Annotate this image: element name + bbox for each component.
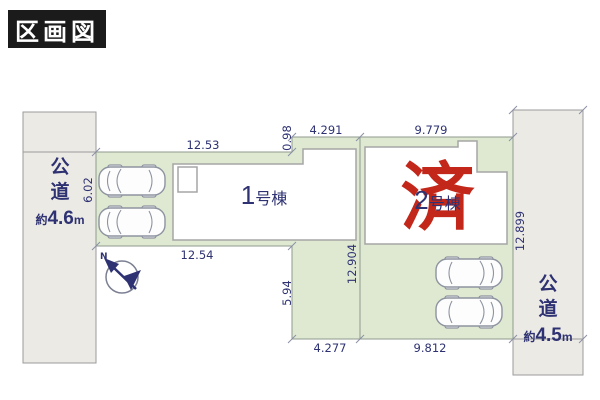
building-2-number: 2 xyxy=(414,185,428,215)
dim-plot1-right: 12.904 xyxy=(345,244,359,284)
building-1-label: 1号棟 xyxy=(204,177,324,213)
dim-plot2-top: 9.779 xyxy=(415,123,448,137)
road-left-unit: m xyxy=(74,213,85,227)
compass-icon: N xyxy=(100,252,141,293)
road-left xyxy=(23,112,96,363)
road-right-name: 公道 xyxy=(536,272,560,322)
building-1-number: 1 xyxy=(241,180,255,210)
building-2-label: 2号棟 xyxy=(380,183,495,217)
dim-plot1-bottom: 12.54 xyxy=(181,248,214,262)
car-icon xyxy=(99,206,165,238)
lot-map: N 12.53 4.291 9.779 12.54 4.277 9.812 6.… xyxy=(0,0,600,400)
car-icon xyxy=(99,165,165,197)
road-left-width: 約4.6m xyxy=(33,208,87,230)
dim-plot1-ext-left: 5.94 xyxy=(280,280,294,306)
road-right-value: 4.5 xyxy=(535,325,561,346)
dim-plot1-top-right: 4.291 xyxy=(310,123,343,137)
compass-north-label: N xyxy=(100,252,108,262)
dim-plot1-top: 12.53 xyxy=(187,138,220,152)
car-icon xyxy=(436,257,502,289)
dim-plot1-ext-bottom: 4.277 xyxy=(314,341,347,355)
road-left-name: 公道 xyxy=(48,155,72,205)
dim-plot2-bottom: 9.812 xyxy=(414,341,447,355)
road-left-approx: 約 xyxy=(35,213,47,227)
road-left-value: 4.6 xyxy=(47,208,73,229)
dim-plot1-step: 0.98 xyxy=(280,125,294,151)
car-icon xyxy=(436,296,502,328)
road-left-label: 公道 約4.6m xyxy=(33,155,87,230)
building-1-porch xyxy=(178,167,197,192)
road-right-unit: m xyxy=(562,330,573,344)
road-right-approx: 約 xyxy=(523,330,535,344)
road-right-label: 公道 約4.5m xyxy=(521,272,575,347)
title-badge: 区画図 xyxy=(8,10,106,48)
dim-plot2-right: 12.899 xyxy=(513,211,527,251)
building-1-suffix: 号棟 xyxy=(255,191,287,208)
building-2-suffix: 号棟 xyxy=(429,196,461,213)
road-right-width: 約4.5m xyxy=(521,325,575,347)
